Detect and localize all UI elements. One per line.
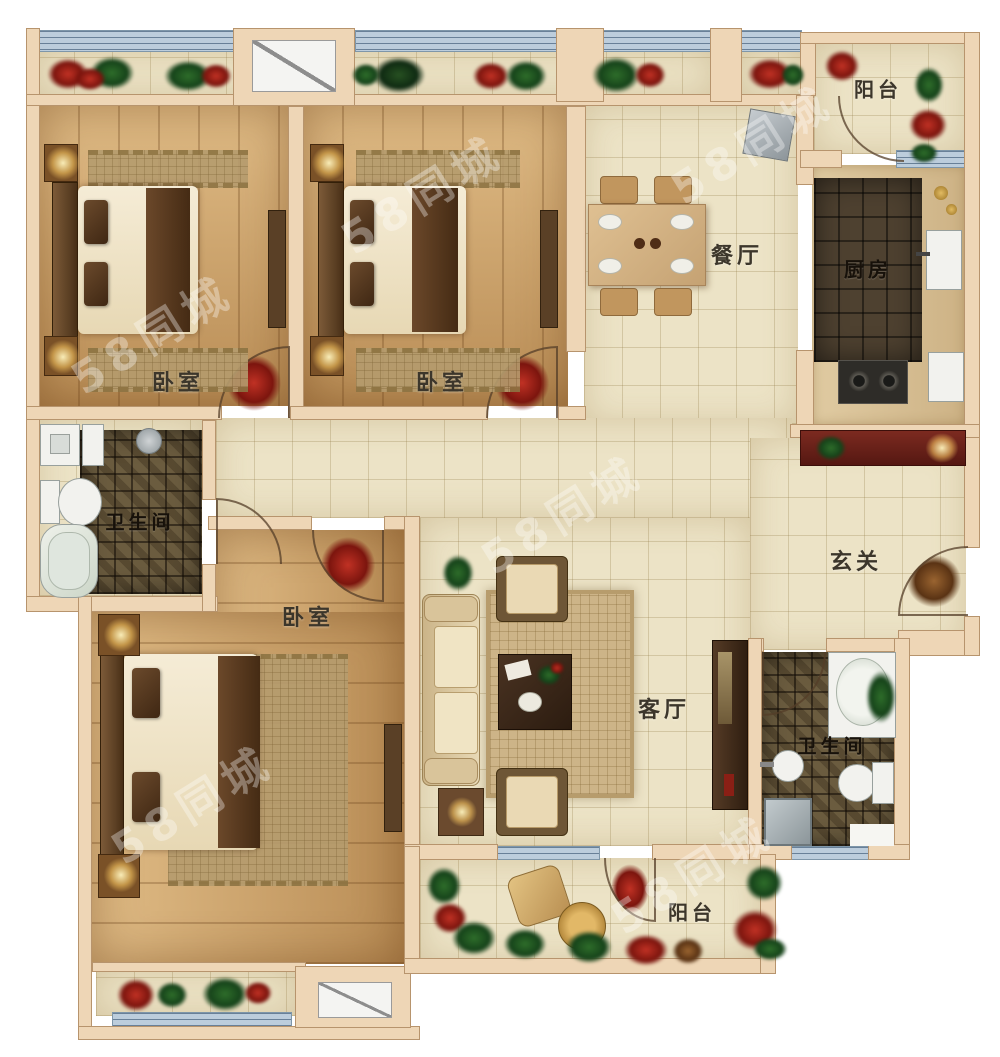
room-label-balcony-bottom: 阳台 <box>668 897 716 926</box>
kitchen-deco-1 <box>934 186 948 200</box>
tv-cabinet-deco <box>724 774 734 796</box>
wall-entry-right-jamb <box>964 616 980 656</box>
flower-box-plant-3 <box>70 64 110 94</box>
wall-bathroom2-bottom-b <box>868 844 910 860</box>
bathroom-1-showerhead <box>136 428 162 454</box>
kitchen-sink <box>926 230 962 290</box>
dining-bowl-2 <box>650 238 661 249</box>
wall-bedroom3-left <box>78 596 92 1040</box>
room-label-entry: 玄关 <box>830 544 882 576</box>
window-living-balcony <box>496 846 600 860</box>
bedroom-2-bed-runner <box>412 188 458 332</box>
wall-left-outer <box>26 28 40 612</box>
bathroom-2-corner <box>850 824 894 846</box>
window-bedroom-1 <box>36 30 234 52</box>
bedroom-1-bed-runner <box>146 188 190 332</box>
wall-right-outer <box>964 32 980 548</box>
stove-burner-2 <box>878 370 900 392</box>
bathroom-1-basin <box>82 424 104 466</box>
room-label-bedroom-2: 卧室 <box>416 365 468 397</box>
wall-bedroom3-bottom-inner <box>92 962 306 972</box>
bedroom-2-wardrobe <box>540 210 558 328</box>
wall-balcony-kitchen <box>800 150 842 168</box>
wall-balcony-bottom-left <box>404 846 420 974</box>
balcony-bottom-plant-5 <box>560 926 618 968</box>
wall-top-pier <box>710 28 742 102</box>
coffee-table-flowers-red <box>548 660 566 676</box>
bedroom-2-headboard <box>318 182 344 338</box>
balcony-bottom-plant-7 <box>668 934 708 968</box>
dining-plate-2 <box>670 214 694 230</box>
dining-chair-4 <box>654 288 692 316</box>
bedroom-1-pillow-1 <box>84 200 108 244</box>
armchair-bottom-cushion <box>506 776 558 828</box>
bedroom-3-pillow-2 <box>132 772 160 822</box>
bedroom-1-lamp-top <box>40 140 86 186</box>
side-table-lamp <box>442 792 482 832</box>
kitchen-cabinet <box>928 352 964 402</box>
balcony-bottom-plant-6 <box>618 930 674 970</box>
sofa-arm-top <box>424 596 478 622</box>
dining-chair-1 <box>600 176 638 204</box>
bedroom-1-headboard <box>52 182 78 338</box>
wall-kitchen-stub-top <box>796 95 814 185</box>
bathroom-1-washer-door <box>50 434 70 454</box>
bathroom-1-bathtub-inner <box>48 532 90 590</box>
room-label-bathroom-2: 卫生间 <box>797 732 866 759</box>
window-dining-2 <box>740 30 802 52</box>
wall-bathroom1-right-b <box>202 564 216 612</box>
floor-plan: 阳台 厨房 餐厅 卧室 卧室 卫生间 玄关 卧室 客厅 卫生间 阳台 58同城 … <box>0 0 1000 1057</box>
wall-bathroom2-right <box>894 638 910 860</box>
room-label-bedroom-3: 卧室 <box>282 600 334 632</box>
balcony-bottom-plant-8 <box>740 860 788 906</box>
bedroom-1-lamp-bottom <box>40 334 86 380</box>
bedroom-3-box-plant-4 <box>240 978 276 1008</box>
bathroom-2-shower <box>764 798 812 846</box>
flower-box-plant-9 <box>500 56 552 96</box>
wall-bedrooms-bottom-b <box>290 406 488 420</box>
bedroom-2-pillow-1 <box>350 200 374 244</box>
bedroom-1-rug-top <box>88 150 248 188</box>
window-dining-1 <box>602 30 712 52</box>
wall-living-bottom-b <box>652 844 750 860</box>
wall-top-bedrooms <box>26 94 802 106</box>
window-bedroom-2 <box>355 30 557 52</box>
kitchen-faucet <box>916 252 930 256</box>
coffee-table-plate <box>518 692 542 712</box>
dining-plate-1 <box>598 214 622 230</box>
flower-box-plant-7 <box>348 60 384 90</box>
bedroom-2-rug-top <box>356 150 520 188</box>
sofa-cushion-1 <box>434 626 478 688</box>
dining-plate-3 <box>598 258 622 274</box>
balcony-bottom-plant-10 <box>748 934 792 964</box>
wall-bedroom3-right <box>404 516 420 848</box>
armchair-top-cushion <box>506 564 558 614</box>
balcony-bottom-plant-4 <box>498 924 552 964</box>
bedroom-3-dresser <box>384 724 402 832</box>
entry-plant <box>812 432 850 464</box>
bedroom-3-headboard <box>100 648 124 856</box>
wall-bed1-bed2 <box>288 106 304 418</box>
bedroom-2-lamp-bottom <box>306 334 352 380</box>
bathroom-1-toilet-bowl <box>58 478 102 526</box>
living-plant <box>438 550 478 596</box>
bedroom-3-lamp-top <box>98 612 144 658</box>
sofa-arm-bottom <box>424 758 478 784</box>
tv-panel <box>718 652 732 724</box>
room-label-balcony-top: 阳台 <box>854 74 902 103</box>
bedroom-2-lamp-top <box>306 140 352 186</box>
balcony-top-plant-4 <box>906 140 942 166</box>
dining-bowl-1 <box>634 238 645 249</box>
wall-bathroom1-bottom <box>26 596 218 612</box>
room-label-dining: 餐厅 <box>711 238 763 270</box>
window-bathroom-2 <box>786 846 872 860</box>
dining-plate-4 <box>670 258 694 274</box>
dining-chair-3 <box>600 288 638 316</box>
wall-bedrooms-bottom-c <box>558 406 586 420</box>
kitchen-deco-2 <box>946 204 957 215</box>
room-label-bathroom-1: 卫生间 <box>105 508 174 535</box>
bedroom-3-bed-runner <box>218 656 260 848</box>
balcony-bottom-plant-3 <box>446 916 502 960</box>
bathroom-2-toilet-tank <box>872 762 894 804</box>
wall-balcony-top <box>800 32 978 44</box>
wall-bedrooms-bottom-a <box>26 406 222 420</box>
room-label-kitchen: 厨房 <box>844 254 892 283</box>
stove-burner-1 <box>848 370 870 392</box>
balcony-top-plant-2 <box>910 62 948 108</box>
dining-chair-2 <box>654 176 692 204</box>
room-label-bedroom-1: 卧室 <box>152 365 204 397</box>
flower-box-plant-5 <box>196 60 236 92</box>
entry-lamp <box>920 428 964 468</box>
sofa-cushion-2 <box>434 692 478 754</box>
bathroom-2-sink-arm <box>760 762 774 767</box>
bedroom-3-pillow-1 <box>132 668 160 718</box>
wall-bathroom2-left <box>748 638 762 860</box>
shaft-bottom-duct <box>318 982 392 1018</box>
shaft-top-duct <box>252 40 336 92</box>
flower-box-plant-13 <box>778 60 808 90</box>
corridor-floor <box>216 418 792 518</box>
wall-bedroom3-bottom-outer <box>78 1026 420 1040</box>
wall-bathroom1-right-a <box>202 420 216 500</box>
bathroom-2-plant <box>862 664 900 730</box>
room-label-living: 客厅 <box>638 692 690 724</box>
bedroom-1-wardrobe <box>268 210 286 328</box>
bedroom-1-pillow-2 <box>84 262 108 306</box>
wall-bed2-dining <box>566 106 586 352</box>
bathroom-1-toilet-tank <box>40 480 60 524</box>
bedroom-3-box-plant-2 <box>152 978 192 1012</box>
flower-box-plant-11 <box>630 58 670 92</box>
fridge <box>742 108 795 161</box>
bathroom-2-toilet-bowl <box>838 764 876 802</box>
bedroom-2-pillow-2 <box>350 262 374 306</box>
bedroom-3-lamp-bottom <box>98 852 144 898</box>
